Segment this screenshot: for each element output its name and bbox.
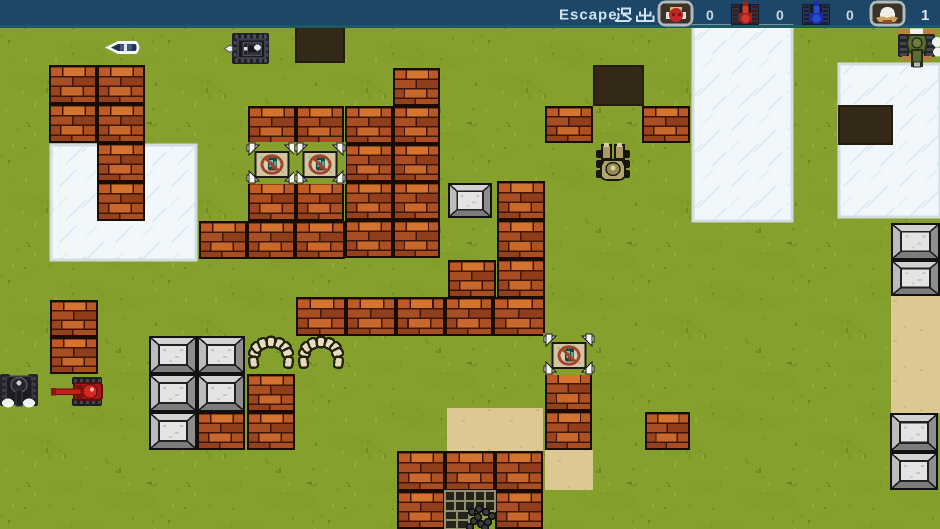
svg-text:0: 0 <box>846 7 854 23</box>
svg-text:0: 0 <box>706 7 714 23</box>
svg-text:0: 0 <box>776 7 784 23</box>
svg-text:Escape: Escape <box>559 7 618 24</box>
svg-text:1: 1 <box>921 7 929 24</box>
